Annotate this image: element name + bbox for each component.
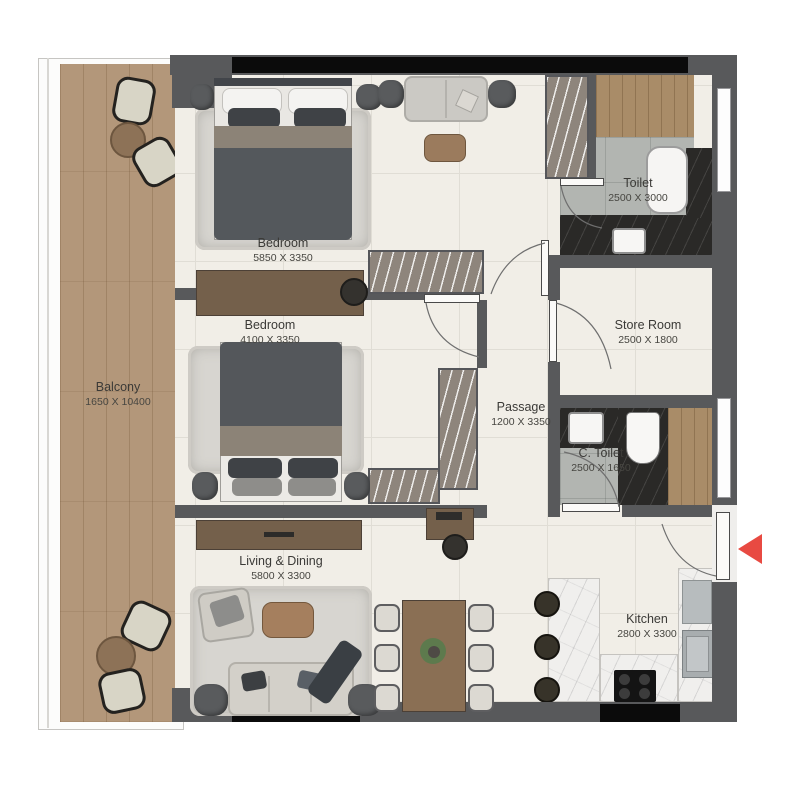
wall-store-ctoilet <box>548 395 712 408</box>
room-name: Kitchen <box>617 612 677 628</box>
kitchen-appliance-icon <box>682 580 712 624</box>
room-dims: 4100 X 3350 <box>240 334 300 347</box>
room-name: Toilet <box>608 176 668 192</box>
bed1-accent-pillow <box>228 108 280 128</box>
pouf-icon <box>192 472 218 500</box>
room-dims: 2500 X 1650 <box>571 462 631 475</box>
room-label-toilet: Toilet 2500 X 3000 <box>608 176 668 205</box>
room-dims: 5850 X 3350 <box>253 252 313 265</box>
room-dims: 2500 X 1800 <box>615 334 682 347</box>
room-name: Bedroom <box>253 236 313 252</box>
bar-stool-icon <box>534 634 560 660</box>
room-dims: 2500 X 3000 <box>608 192 668 205</box>
room-dims: 5800 X 3300 <box>239 570 322 583</box>
wardrobe-bedroom1-icon <box>545 75 589 179</box>
dining-chair-icon <box>468 644 494 672</box>
bedroom2-door <box>424 294 480 303</box>
window-bottom-kitchen <box>600 704 680 722</box>
wall-bedroom2-right-stub <box>477 300 487 368</box>
toilet-counter-column <box>686 148 712 218</box>
bed2-accent-pillow <box>228 458 282 478</box>
kitchen-sink-basin <box>686 636 709 672</box>
floor-plan: Balcony 1650 X 10400 Bedroom 5850 X 3350… <box>0 0 800 800</box>
desk-chair-icon <box>442 534 468 560</box>
room-label-c-toilet: C. Toilet 2500 X 1650 <box>571 446 631 475</box>
desk-monitor-icon <box>436 512 462 520</box>
room-label-kitchen: Kitchen 2800 X 3300 <box>617 612 677 641</box>
bed1-blanket-fold <box>214 126 352 150</box>
bed1-accent-pillow <box>294 108 346 128</box>
room-name: C. Toilet <box>571 446 631 462</box>
toilet-door <box>560 178 604 186</box>
bed2-blanket-fold <box>220 426 342 456</box>
room-name: Balcony <box>85 380 150 396</box>
room-label-balcony: Balcony 1650 X 10400 <box>85 380 150 409</box>
c-toilet-wood-floor <box>668 408 712 505</box>
pouf-icon <box>194 684 228 716</box>
c-toilet-door <box>562 503 620 512</box>
wall-toilet-store <box>548 255 712 268</box>
bed2-accent-pillow <box>288 458 338 478</box>
c-toilet-sink-icon <box>568 412 604 444</box>
toilet-shower-deck <box>596 75 694 137</box>
shared-desk-console <box>196 270 364 316</box>
tv-console-handle <box>264 532 294 537</box>
room-label-store-room: Store Room 2500 X 1800 <box>615 318 682 347</box>
room-dims: 1650 X 10400 <box>85 396 150 409</box>
room-dims: 2800 X 3300 <box>617 628 677 641</box>
bed1-headboard <box>214 78 352 86</box>
entrance-door <box>716 512 730 580</box>
room-label-bedroom-2: Bedroom 4100 X 3350 <box>240 318 300 347</box>
wall-below-ctoilet-b <box>622 505 712 517</box>
coffee-table-icon <box>262 602 314 638</box>
dining-chair-icon <box>374 644 400 672</box>
room-label-passage: Passage 1200 X 3350 <box>491 400 551 429</box>
wardrobe-bedroom2-vertical-icon <box>438 368 478 490</box>
wall-right-lower <box>712 582 737 722</box>
room-label-living-dining: Living & Dining 5800 X 3300 <box>239 554 322 583</box>
hob-burner <box>619 674 630 685</box>
pouf-icon <box>488 80 516 108</box>
wall-passage-right-a <box>548 255 560 300</box>
bed2-blanket <box>220 342 342 430</box>
dining-chair-icon <box>374 684 400 712</box>
pouf-icon <box>344 472 370 500</box>
hob-burner <box>639 674 650 685</box>
wall-below-ctoilet-a <box>548 505 560 517</box>
passage-door <box>541 240 549 296</box>
store-room-door <box>549 300 557 362</box>
sofa-cushion-line <box>268 676 270 712</box>
bar-stool-icon <box>534 591 560 617</box>
wardrobe-bedroom2-horizontal-icon <box>368 468 440 504</box>
hob-burner <box>639 688 650 699</box>
room-name: Passage <box>491 400 551 416</box>
coffee-table-bedroom1-icon <box>424 134 466 162</box>
bed2-pillow <box>232 478 282 496</box>
wc-icon <box>626 412 660 464</box>
bar-stool-icon <box>534 677 560 703</box>
window-right-middle <box>717 398 731 498</box>
hob-burner <box>619 688 630 699</box>
wall-passage-right-b <box>548 362 560 512</box>
toilet-sink-icon <box>612 228 646 254</box>
dining-chair-icon <box>468 684 494 712</box>
room-name: Bedroom <box>240 318 300 334</box>
balcony-railing-inner-line <box>47 58 49 728</box>
sofa-bedroom1-cushion-line <box>445 80 447 118</box>
dining-chair-icon <box>374 604 400 632</box>
room-name: Living & Dining <box>239 554 322 570</box>
room-dims: 1200 X 3350 <box>491 416 551 429</box>
plant-pot <box>428 646 440 658</box>
bed2-pillow <box>288 478 336 496</box>
room-label-bedroom-1: Bedroom 5850 X 3350 <box>253 236 313 265</box>
window-top <box>232 57 688 73</box>
desk-chair-icon <box>340 278 368 306</box>
pouf-icon <box>378 80 404 108</box>
wardrobe-passage-icon <box>368 250 484 294</box>
bed1-blanket <box>214 148 352 240</box>
window-toilet-right <box>717 88 731 192</box>
dining-chair-icon <box>468 604 494 632</box>
entrance-arrow-icon <box>738 534 762 564</box>
room-name: Store Room <box>615 318 682 334</box>
pouf-icon <box>190 84 214 110</box>
